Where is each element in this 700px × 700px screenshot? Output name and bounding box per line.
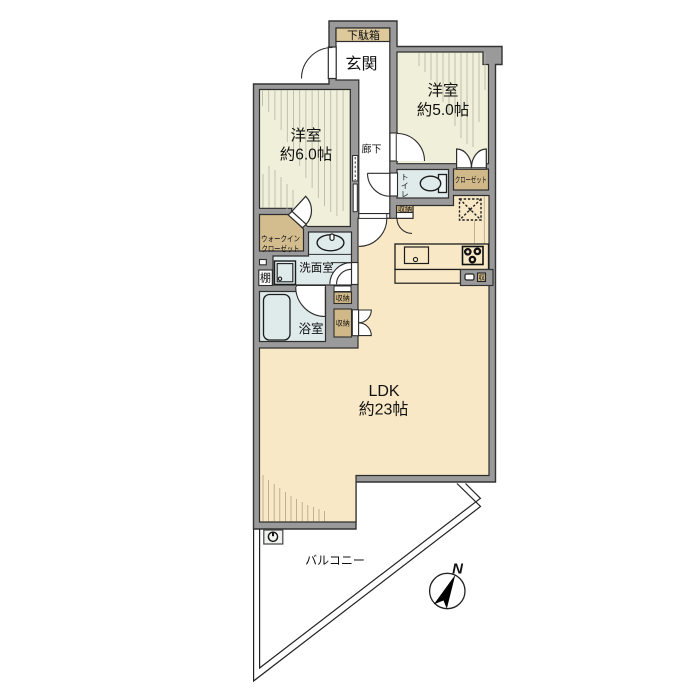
svg-text:N: N: [452, 561, 464, 578]
svg-text:クローゼット: クローゼット: [262, 243, 300, 253]
svg-text:洗面室: 洗面室: [299, 261, 334, 275]
svg-text:廊下: 廊下: [362, 143, 382, 156]
svg-text:洋室: 洋室: [427, 81, 458, 99]
svg-text:ウォークイン: ウォークイン: [261, 234, 300, 243]
svg-text:収納: 収納: [336, 293, 350, 302]
svg-text:収納: 収納: [398, 205, 412, 214]
svg-text:レ: レ: [401, 190, 409, 199]
svg-text:玄関: 玄関: [345, 55, 377, 73]
svg-text:クローゼット: クローゼット: [455, 174, 487, 184]
svg-text:下駄箱: 下駄箱: [347, 28, 380, 42]
svg-text:収納: 収納: [336, 318, 350, 327]
svg-text:約23帖: 約23帖: [359, 401, 409, 419]
svg-text:浴室: 浴室: [298, 321, 323, 336]
svg-text:収: 収: [478, 274, 485, 282]
svg-text:LDK: LDK: [368, 383, 399, 400]
svg-text:棚: 棚: [260, 271, 271, 285]
svg-text:洋室: 洋室: [290, 126, 321, 144]
svg-text:約6.0帖: 約6.0帖: [280, 146, 333, 164]
svg-text:約5.0帖: 約5.0帖: [417, 101, 470, 119]
svg-text:バルコニー: バルコニー: [305, 554, 365, 568]
